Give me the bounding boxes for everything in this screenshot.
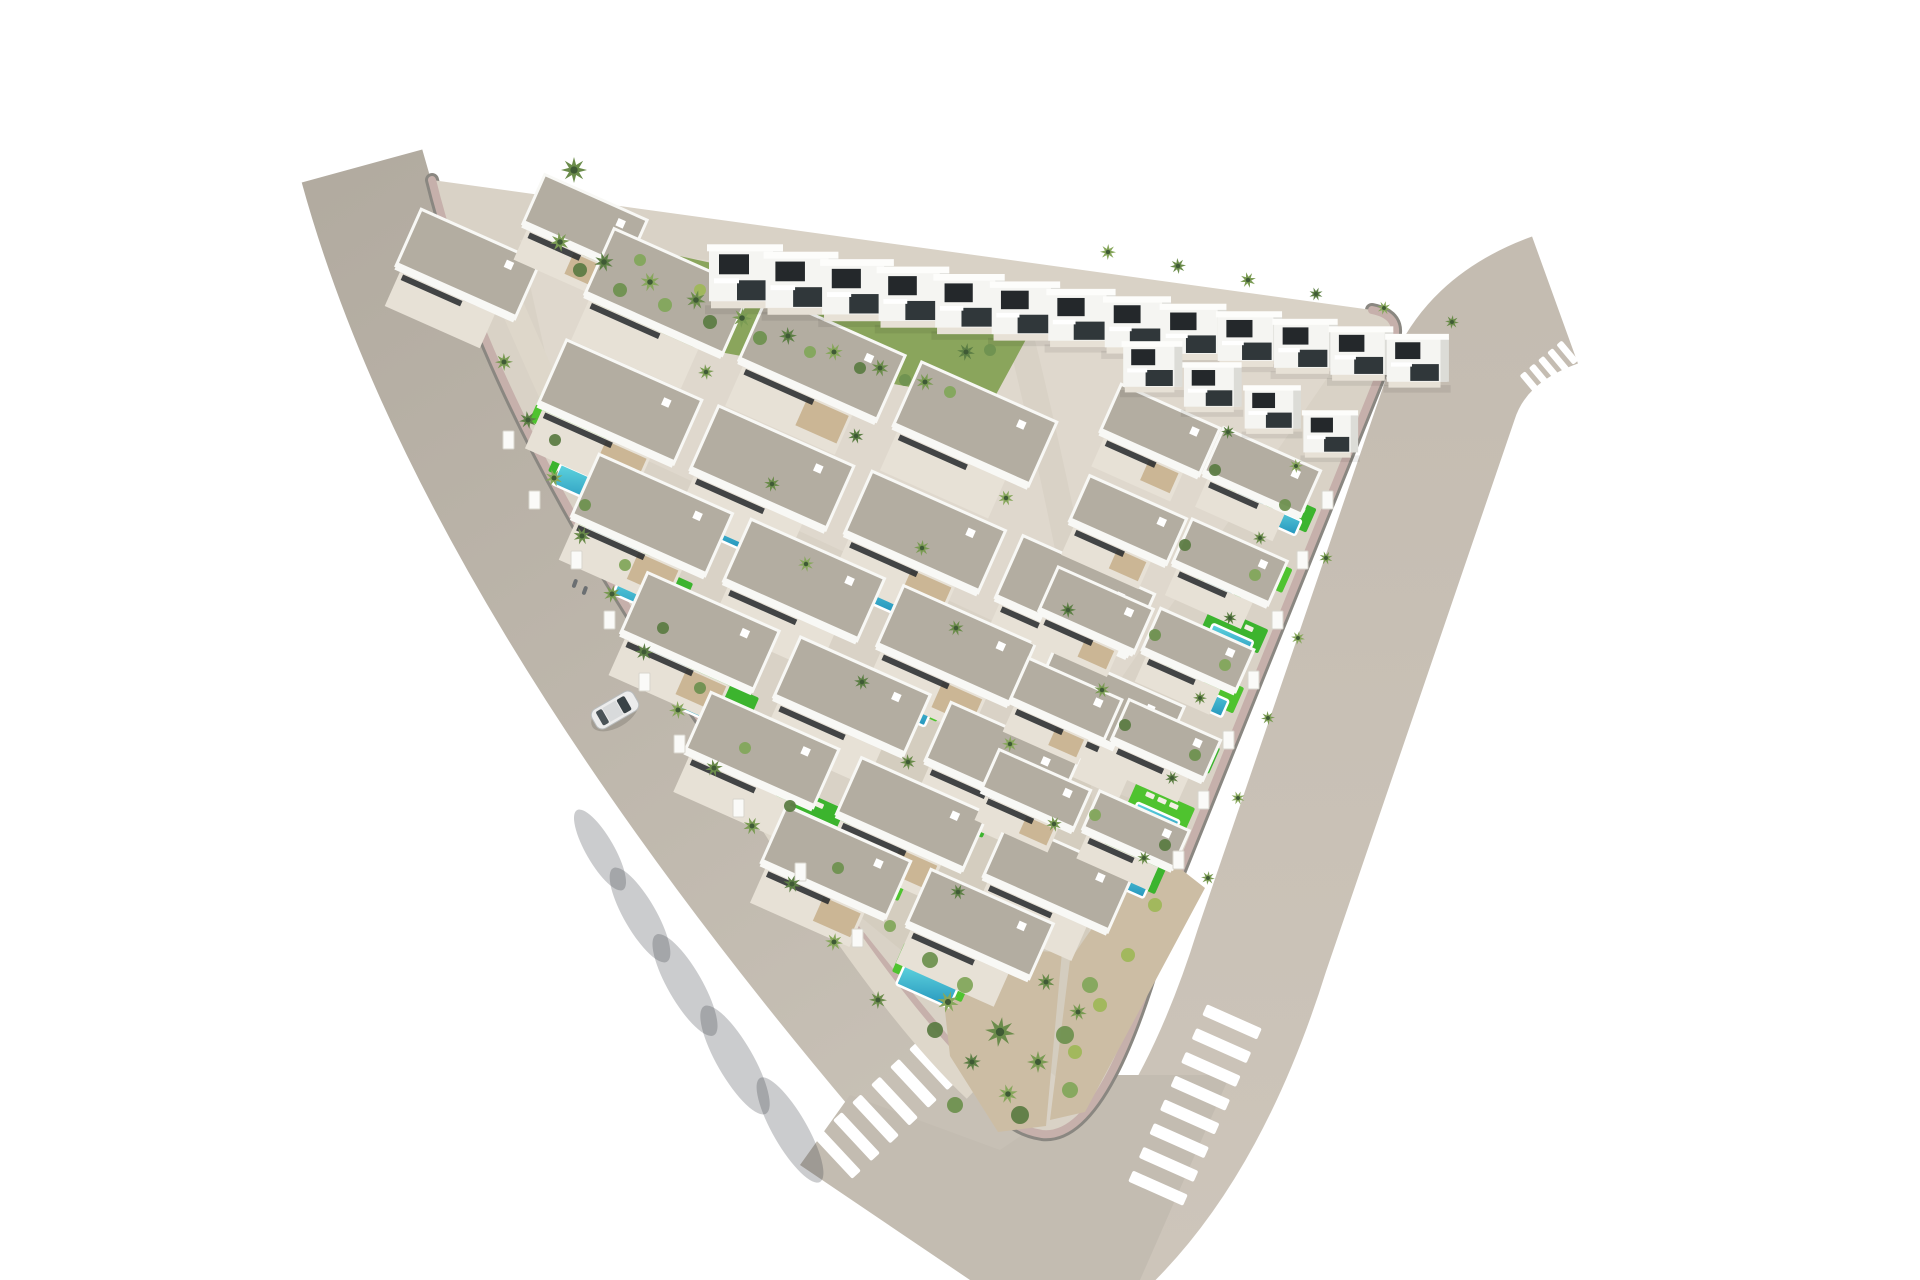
palm-trunk-top — [945, 999, 951, 1005]
palm-trunk-top — [963, 349, 968, 354]
upper-window — [1395, 342, 1420, 359]
wall-pillar — [1198, 791, 1209, 809]
palm-trunk-top — [875, 997, 880, 1002]
upper-window — [1283, 327, 1309, 344]
palm-trunk-top — [1198, 696, 1202, 700]
upper-window — [1131, 349, 1155, 365]
palm-trunk-top — [557, 239, 563, 245]
palm-trunk-top — [1294, 464, 1298, 468]
palm-trunk-top — [739, 315, 745, 321]
wall-pillar — [604, 611, 615, 629]
lower-window — [1324, 437, 1349, 452]
wall-pillar — [529, 491, 540, 509]
bush — [753, 331, 767, 345]
palm-trunk-top — [551, 475, 556, 480]
palm-trunk-top — [609, 591, 614, 596]
bush — [832, 862, 844, 874]
bush — [804, 346, 816, 358]
bush — [947, 1097, 963, 1113]
roof-slab — [933, 274, 1004, 281]
bush — [922, 952, 938, 968]
balcony-rail — [1109, 327, 1131, 331]
bush — [694, 682, 706, 694]
roof-slab — [1103, 296, 1171, 302]
wall-pillar — [1173, 851, 1184, 869]
palm-trunk-top — [1100, 688, 1104, 692]
balcony-rail — [1222, 341, 1244, 345]
bush — [1209, 464, 1221, 476]
upper-window — [1252, 393, 1275, 408]
roof-slab — [764, 252, 839, 259]
wall-pillar — [503, 431, 514, 449]
bush — [1119, 719, 1131, 731]
balcony-rail — [770, 285, 795, 290]
bush — [549, 434, 561, 446]
bush — [703, 315, 717, 329]
roof-slab — [1302, 410, 1358, 415]
bush — [1279, 499, 1291, 511]
palm-trunk-top — [570, 166, 577, 173]
palm-trunk-top — [1052, 822, 1056, 826]
bush — [957, 977, 973, 993]
palm-trunk-top — [1324, 556, 1328, 560]
upper-window — [775, 262, 805, 282]
balcony-rail — [1248, 411, 1267, 415]
upper-window — [1339, 335, 1365, 352]
lower-window — [1298, 350, 1327, 367]
lower-window — [1242, 343, 1272, 360]
palm-trunk-top — [877, 365, 882, 370]
bush — [739, 742, 751, 754]
balcony-rail — [940, 306, 964, 311]
bush — [1149, 629, 1161, 641]
bush — [1159, 839, 1171, 851]
wall-pillar — [1248, 671, 1259, 689]
balcony-rail — [1391, 362, 1412, 366]
wall-pillar — [733, 799, 744, 817]
palm-trunk-top — [1004, 496, 1008, 500]
palm-trunk-top — [954, 626, 958, 630]
palm-trunk-top — [956, 890, 960, 894]
lower-window — [1206, 390, 1233, 406]
palm-trunk-top — [854, 434, 858, 438]
lower-window — [793, 287, 826, 307]
palm-trunk-top — [1258, 536, 1262, 540]
palm-trunk-top — [789, 881, 794, 886]
bush — [657, 622, 669, 634]
balcony-rail — [1127, 368, 1147, 372]
bush — [658, 298, 672, 312]
roof-slab — [820, 259, 894, 266]
roof-slab — [1329, 326, 1394, 332]
palm-trunk-top — [920, 546, 924, 550]
upper-window — [1001, 291, 1029, 310]
balcony-rail — [1166, 334, 1188, 338]
upper-window — [1226, 320, 1252, 337]
balcony-rail — [1307, 435, 1326, 439]
roof-slab — [877, 267, 950, 274]
palm-trunk-top — [1005, 1091, 1011, 1097]
villa-two-story — [1300, 410, 1359, 462]
render-canvas — [0, 0, 1920, 1280]
palm-trunk-top — [1382, 306, 1386, 310]
palm-trunk-top — [785, 333, 790, 338]
bush — [984, 344, 996, 356]
palm-trunk-top — [906, 760, 910, 764]
lower-window — [1186, 335, 1216, 353]
lower-window — [1146, 370, 1173, 386]
palm-trunk-top — [804, 562, 808, 566]
bush — [573, 263, 587, 277]
palm-trunk-top — [749, 823, 754, 828]
palm-trunk-top — [693, 297, 699, 303]
palm-trunk-top — [770, 482, 774, 486]
upper-window — [888, 276, 917, 295]
palm-trunk-top — [1008, 742, 1012, 746]
palm-trunk-top — [1206, 876, 1210, 880]
palm-trunk-top — [1228, 616, 1232, 620]
palm-trunk-top — [1296, 636, 1300, 640]
palm-trunk-top — [1106, 250, 1110, 254]
palm-trunk-top — [1043, 979, 1048, 984]
bush — [619, 559, 631, 571]
wall-pillar — [1322, 491, 1333, 509]
wall-pillar — [795, 863, 806, 881]
palm-trunk-top — [647, 279, 653, 285]
wall-pillar — [1223, 731, 1234, 749]
wall-pillar — [571, 551, 582, 569]
balcony-rail — [714, 278, 739, 283]
bush — [899, 374, 911, 386]
palm-trunk-top — [579, 533, 584, 538]
bush — [1121, 948, 1135, 962]
villa-side-face — [1441, 338, 1449, 382]
palm-trunk-top — [1035, 1059, 1041, 1065]
upper-window — [1192, 370, 1215, 386]
palm-trunk-top — [704, 370, 708, 374]
lower-window — [1266, 413, 1292, 428]
roof-slab — [1385, 334, 1449, 340]
wall-pillar — [639, 673, 650, 691]
bush — [884, 920, 896, 932]
lower-window — [1354, 357, 1383, 374]
palm-trunk-top — [641, 649, 646, 654]
balcony-rail — [883, 299, 907, 304]
balcony-rail — [1335, 355, 1356, 359]
bush — [1082, 977, 1098, 993]
palm-trunk-top — [996, 1028, 1004, 1036]
roof-slab — [1216, 311, 1282, 317]
roof-slab — [1272, 319, 1337, 325]
roof-slab — [990, 281, 1060, 287]
palm-trunk-top — [1176, 264, 1180, 268]
roof-slab — [1243, 385, 1301, 390]
upper-window — [945, 283, 973, 302]
bush — [634, 254, 646, 266]
villa-side-face — [1293, 389, 1301, 429]
palm-trunk-top — [831, 939, 836, 944]
bush — [1062, 1082, 1078, 1098]
palm-trunk-top — [525, 417, 530, 422]
villa-side-face — [1234, 366, 1242, 407]
bush — [613, 283, 627, 297]
bush — [1148, 898, 1162, 912]
upper-window — [1311, 418, 1333, 433]
palm-trunk-top — [1450, 320, 1454, 324]
bush — [944, 386, 956, 398]
bush — [1249, 569, 1261, 581]
palm-trunk-top — [1314, 292, 1318, 296]
palm-trunk-top — [711, 765, 716, 770]
roof-slab — [707, 244, 783, 251]
bush — [1179, 539, 1191, 551]
palm-trunk-top — [601, 259, 607, 265]
bush — [1056, 1026, 1074, 1044]
upper-window — [1170, 313, 1196, 331]
palm-trunk-top — [1170, 776, 1174, 780]
roof-slab — [1182, 362, 1241, 367]
palm-trunk-top — [1075, 1009, 1080, 1014]
palm-trunk-top — [1236, 796, 1240, 800]
palm-trunk-top — [969, 1059, 974, 1064]
wall-pillar — [1297, 551, 1308, 569]
lower-window — [905, 301, 937, 320]
palm-trunk-top — [1142, 856, 1146, 860]
palm-trunk-top — [1246, 278, 1250, 282]
palm-trunk-top — [922, 379, 927, 384]
villa-side-face — [1351, 414, 1358, 452]
roof-slab — [1046, 289, 1115, 295]
palm-trunk-top — [860, 680, 864, 684]
bush — [784, 800, 796, 812]
palm-shadow — [745, 1070, 834, 1191]
palm-trunk-top — [501, 359, 506, 364]
balcony-rail — [1278, 348, 1300, 352]
lower-window — [1018, 315, 1049, 334]
balcony-rail — [827, 292, 851, 297]
bush — [1093, 998, 1107, 1012]
palm-trunk-top — [1266, 716, 1270, 720]
bush — [1089, 809, 1101, 821]
lower-window — [961, 308, 993, 327]
upper-window — [719, 254, 749, 274]
palm-trunk-top — [675, 707, 680, 712]
balcony-rail — [996, 313, 1019, 318]
bush — [927, 1022, 943, 1038]
wall-pillar — [852, 929, 863, 947]
wall-pillar — [1272, 611, 1283, 629]
upper-window — [1114, 305, 1141, 323]
palm-trunk-top — [1066, 608, 1070, 612]
upper-window — [832, 269, 861, 288]
wall-pillar — [674, 735, 685, 753]
aerial-development-render — [0, 0, 1920, 1280]
bush — [579, 499, 591, 511]
bush — [1189, 749, 1201, 761]
villa-two-story — [1181, 362, 1243, 417]
lower-window — [849, 294, 882, 313]
palm-trunk-top — [831, 349, 836, 354]
roof-slab — [1160, 304, 1227, 310]
bush — [1068, 1045, 1082, 1059]
lower-window — [1410, 364, 1439, 381]
bush — [1219, 659, 1231, 671]
roof-slab — [1122, 341, 1183, 347]
balcony-rail — [1188, 389, 1208, 393]
bush — [1011, 1106, 1029, 1124]
bush — [854, 362, 866, 374]
lower-window — [1074, 322, 1105, 340]
palm-trunk-top — [1226, 430, 1230, 434]
bush — [694, 284, 706, 296]
upper-window — [1057, 298, 1084, 316]
balcony-rail — [1053, 320, 1076, 325]
villa-side-face — [1174, 345, 1182, 387]
